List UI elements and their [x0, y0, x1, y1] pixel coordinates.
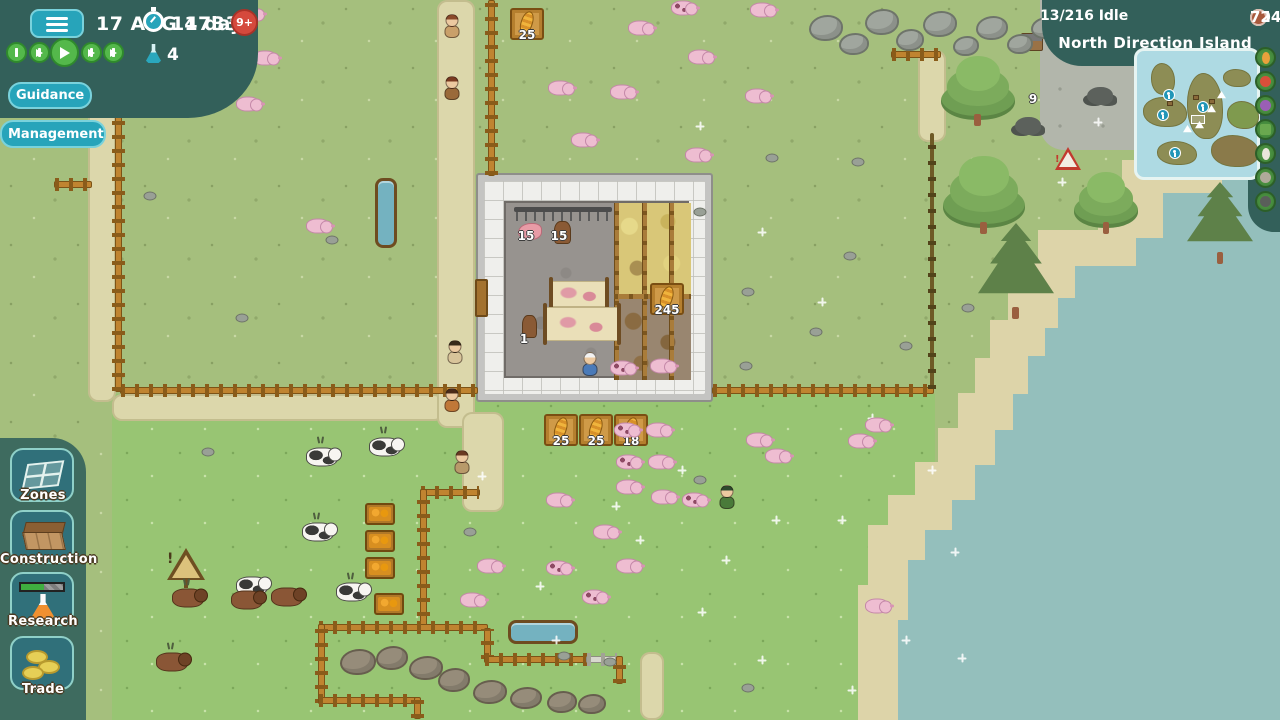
game-viewport: 25252518245915151 17 AUG 1733 14 days 9+…: [0, 0, 1280, 720]
fast-button[interactable]: [81, 42, 102, 63]
mud-pen-area: [614, 296, 691, 380]
management-button[interactable]: Management: [0, 120, 106, 148]
toolbar-label: Zones: [0, 488, 86, 503]
research-points: 4: [167, 45, 179, 65]
pen-rail: [614, 294, 691, 299]
minimap-island: [1223, 69, 1251, 87]
drying-cloth: [552, 281, 606, 307]
construction-icon: [22, 532, 66, 550]
minimap-anchor-marker[interactable]: [1197, 101, 1209, 113]
filter-corn-icon[interactable]: [1255, 47, 1276, 68]
filter-stone-icon[interactable]: [1255, 167, 1276, 188]
pen-rail: [642, 203, 647, 380]
slaughterhouse-building[interactable]: [476, 173, 713, 402]
research-progress-icon: [19, 582, 65, 592]
building-floor: [504, 201, 689, 378]
minimap[interactable]: [1134, 48, 1260, 180]
minimap-hut-icon: [1193, 95, 1199, 100]
hay-pen-area: [614, 203, 691, 296]
farm-pasture: [112, 394, 935, 720]
filter-tomato-icon[interactable]: [1255, 71, 1276, 92]
age-rating-badge: 9+: [231, 9, 258, 36]
toolbar-label: Trade: [0, 682, 86, 697]
minimap-selection-rect: [1191, 115, 1205, 124]
stopwatch-icon: [143, 11, 164, 32]
butcher-stand[interactable]: [522, 315, 537, 338]
guidance-button[interactable]: Guidance: [8, 82, 92, 109]
resource-row: 124809572: [1050, 6, 1250, 28]
slow-button[interactable]: [29, 42, 50, 63]
speed-controls: [0, 38, 130, 74]
menu-button[interactable]: [30, 9, 84, 38]
hamburger-icon: [46, 17, 68, 20]
toolbar-label: Research: [0, 614, 86, 629]
minimap-island: [1211, 135, 1259, 167]
play-button[interactable]: [50, 38, 79, 67]
meat-hook-rail: [514, 207, 612, 212]
filter-grapes-icon[interactable]: [1255, 95, 1276, 116]
filter-egg-icon[interactable]: [1255, 143, 1276, 164]
butcher-stand[interactable]: [554, 221, 571, 244]
pen-rail: [669, 203, 674, 380]
zones-grid-icon: [22, 460, 65, 490]
minimap-anchor-marker[interactable]: [1163, 89, 1175, 101]
filter-crate-icon[interactable]: [1255, 119, 1276, 140]
minimap-hut-icon: [1209, 99, 1215, 104]
building-door[interactable]: [475, 279, 488, 317]
minimap-hut-icon: [1167, 101, 1173, 106]
pen-rail: [614, 203, 619, 380]
resource-value: 72: [1250, 8, 1271, 26]
pause-button[interactable]: [6, 42, 27, 63]
coin-icon: [22, 666, 44, 680]
toolbar-label: Construction: [0, 552, 86, 567]
hanging-meat[interactable]: [518, 223, 542, 240]
minimap-anchor-marker[interactable]: [1157, 109, 1169, 121]
filter-coal-icon[interactable]: [1255, 191, 1276, 212]
fastest-button[interactable]: [103, 42, 124, 63]
minimap-anchor-marker[interactable]: [1169, 147, 1181, 159]
drying-cloth: [546, 307, 618, 341]
